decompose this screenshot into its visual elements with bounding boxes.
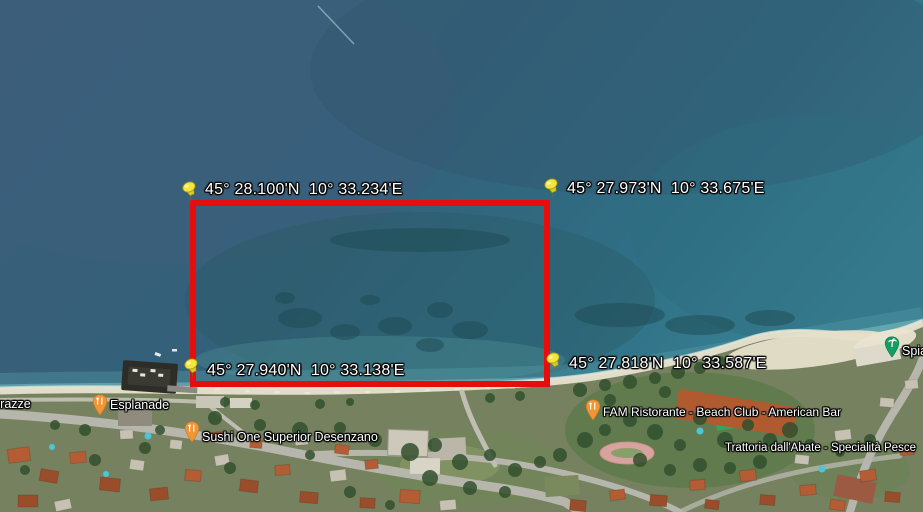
place-marker-sushi-one[interactable]: Sushi One Superior Desenzano bbox=[184, 421, 378, 444]
pushpin-icon bbox=[540, 176, 566, 202]
place-label-trattoria[interactable]: Trattoria dall'Abate - Specialità Pesce bbox=[725, 442, 916, 454]
place-marker-spiaggia[interactable]: Spia bbox=[884, 336, 923, 358]
corner-marker-top-right[interactable]: 45° 27.973'N 10° 33.675'E bbox=[540, 176, 765, 202]
pushpin-icon bbox=[542, 350, 568, 376]
place-marker-fam-ristorante[interactable]: FAM Ristorante - Beach Club - American B… bbox=[585, 399, 841, 421]
coordinate-label: 45° 28.100'N 10° 33.234'E bbox=[205, 181, 403, 199]
coordinate-label: 45° 27.973'N 10° 33.675'E bbox=[567, 180, 765, 198]
restaurant-pin-icon bbox=[92, 394, 108, 416]
coordinate-label: 45° 27.940'N 10° 33.138'E bbox=[207, 362, 405, 380]
restaurant-pin-icon bbox=[585, 399, 601, 421]
coordinate-label: 45° 27.818'N 10° 33.587'E bbox=[569, 355, 767, 373]
place-label: FAM Ristorante - Beach Club - American B… bbox=[603, 405, 841, 419]
corner-marker-bottom-left[interactable]: 45° 27.940'N 10° 33.138'E bbox=[180, 356, 405, 382]
pushpin-icon bbox=[180, 356, 206, 382]
place-label-terrazze-partial[interactable]: rrazze bbox=[0, 397, 31, 411]
satellite-map-view[interactable]: 45° 28.100'N 10° 33.234'E 45° 27.973'N 1… bbox=[0, 0, 923, 512]
corner-marker-bottom-right[interactable]: 45° 27.818'N 10° 33.587'E bbox=[542, 350, 767, 376]
pushpin-icon bbox=[178, 179, 204, 205]
restaurant-pin-icon bbox=[184, 421, 200, 443]
place-label: Esplanade bbox=[110, 398, 169, 412]
place-label: Spia bbox=[902, 344, 923, 358]
place-marker-esplanade[interactable]: Esplanade bbox=[92, 394, 169, 416]
corner-marker-top-left[interactable]: 45° 28.100'N 10° 33.234'E bbox=[178, 179, 403, 205]
place-label: Sushi One Superior Desenzano bbox=[202, 430, 378, 444]
beach-pin-icon bbox=[884, 336, 900, 358]
